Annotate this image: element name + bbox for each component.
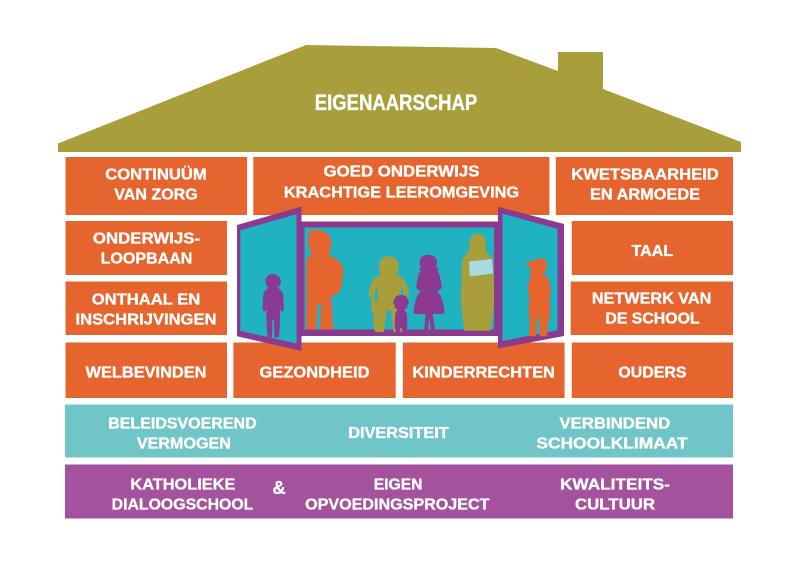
svg-text:GOED ONDERWIJS: GOED ONDERWIJS (324, 164, 480, 181)
svg-text:DIVERSITEIT: DIVERSITEIT (348, 425, 449, 442)
svg-text:OPVOEDINGSPROJECT: OPVOEDINGSPROJECT (305, 497, 490, 514)
svg-text:BELEIDSVOEREND: BELEIDSVOEREND (108, 416, 257, 433)
svg-text:ONTHAAL EN: ONTHAAL EN (92, 291, 201, 308)
svg-text:VERMOGEN: VERMOGEN (137, 435, 231, 452)
svg-text:EIGEN: EIGEN (374, 476, 423, 493)
svg-text:KATHOLIEKE: KATHOLIEKE (130, 476, 235, 493)
svg-text:ONDERWIJS-: ONDERWIJS- (93, 231, 200, 248)
svg-text:KWALITEITS-: KWALITEITS- (560, 476, 670, 493)
svg-text:KINDERRECHTEN: KINDERRECHTEN (412, 365, 555, 382)
svg-text:KRACHTIGE LEEROMGEVING: KRACHTIGE LEEROMGEVING (284, 185, 519, 202)
svg-text:KWETSBAARHEID: KWETSBAARHEID (571, 167, 719, 184)
svg-text:INSCHRIJVINGEN: INSCHRIJVINGEN (76, 312, 217, 329)
svg-text:CULTUUR: CULTUUR (575, 497, 656, 514)
svg-text:OUDERS: OUDERS (618, 365, 686, 382)
svg-text:NETWERK VAN: NETWERK VAN (592, 291, 712, 308)
svg-text:DIALOOGSCHOOL: DIALOOGSCHOOL (112, 497, 254, 514)
svg-text:TAAL: TAAL (632, 243, 674, 260)
svg-text:LOOPBAAN: LOOPBAAN (101, 250, 193, 267)
svg-text:DE SCHOOL: DE SCHOOL (605, 311, 700, 328)
svg-text:GEZONDHEID: GEZONDHEID (260, 365, 370, 382)
svg-text:CONTINUÜM: CONTINUÜM (105, 165, 207, 184)
svg-text:&: & (272, 477, 285, 498)
svg-text:WELBEVINDEN: WELBEVINDEN (86, 365, 207, 382)
svg-text:VERBINDEND: VERBINDEND (559, 416, 670, 433)
svg-text:EN ARMOEDE: EN ARMOEDE (590, 186, 700, 203)
svg-text:SCHOOLKLIMAAT: SCHOOLKLIMAAT (536, 435, 688, 452)
svg-text:VAN ZORG: VAN ZORG (114, 186, 198, 203)
svg-text:EIGENAARSCHAP: EIGENAARSCHAP (315, 90, 478, 115)
